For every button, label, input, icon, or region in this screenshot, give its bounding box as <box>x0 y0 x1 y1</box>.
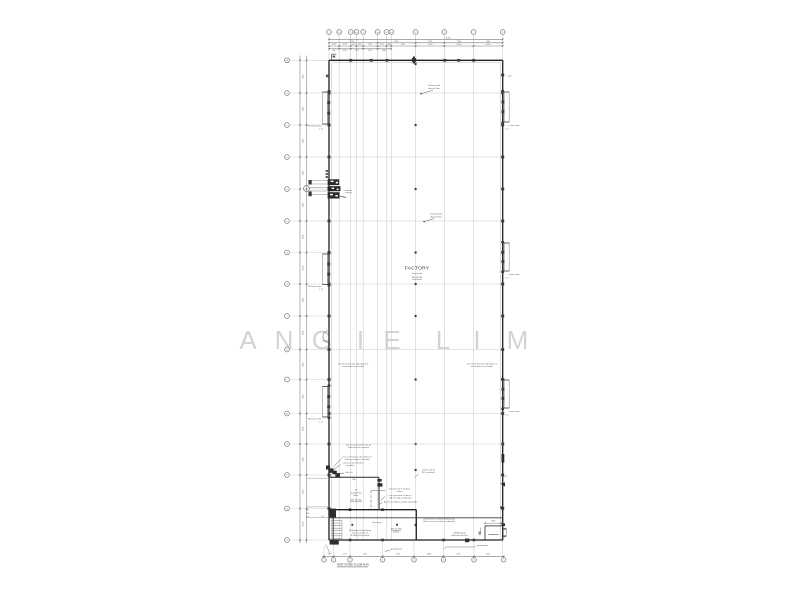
svg-text:FFL 30.150: FFL 30.150 <box>350 499 362 501</box>
svg-text:4 1/2: 4 1/2 <box>505 414 509 416</box>
svg-text:900: 900 <box>328 554 331 556</box>
svg-text:Cant arm top 4 1/2 thick: Cant arm top 4 1/2 thick <box>342 462 363 465</box>
svg-text:grating drain: grating drain <box>477 544 488 547</box>
svg-text:& FFL(a) 150 hi kerb: & FFL(a) 150 hi kerb <box>351 535 370 537</box>
svg-text:N: N <box>275 325 294 355</box>
svg-text:3150: 3150 <box>363 554 367 556</box>
svg-text:10350: 10350 <box>428 44 433 46</box>
svg-text:7500: 7500 <box>486 41 490 43</box>
svg-text:7150: 7150 <box>394 41 398 43</box>
svg-text:100: 100 <box>306 513 309 515</box>
svg-text:Line of exhaust air duct above: Line of exhaust air duct above at <box>343 455 372 458</box>
svg-text:(heavy use): (heavy use) <box>412 273 423 275</box>
svg-text:800: 800 <box>333 50 336 52</box>
svg-text:A: A <box>239 325 257 355</box>
svg-text:J: J <box>287 316 288 318</box>
svg-text:4 1/2: 4 1/2 <box>319 422 323 424</box>
svg-text:(Card Firm): (Card Firm) <box>351 491 362 494</box>
svg-text:5150: 5150 <box>368 44 372 46</box>
svg-text:W2 louvre wdw: W2 louvre wdw <box>308 419 322 421</box>
svg-text:(driveway): (driveway) <box>372 522 382 524</box>
svg-text:W2 louvre wdw: W2 louvre wdw <box>308 286 322 288</box>
svg-text:3150: 3150 <box>396 554 400 556</box>
svg-text:M: M <box>507 325 529 355</box>
svg-text:Line of second stry slab above: Line of second stry slab above to <box>338 363 369 366</box>
svg-text:4 1/2: 4 1/2 <box>319 289 323 291</box>
svg-text:Louvre wdw: Louvre wdw <box>509 125 520 127</box>
svg-text:2nd stry ceiling as indicated: 2nd stry ceiling as indicated <box>345 458 370 461</box>
svg-text:1688: 1688 <box>387 44 391 46</box>
svg-text:A) stair rm lobby to smoke-sto: A) stair rm lobby to smoke-stop lobby <box>384 500 417 503</box>
svg-text:spandrel: spandrel <box>346 465 354 467</box>
svg-text:3050: 3050 <box>457 554 461 556</box>
svg-text:Dash dot line 4 1/2 thick: Dash dot line 4 1/2 thick <box>389 488 410 491</box>
svg-text:10500: 10500 <box>486 44 491 46</box>
svg-text:up: up <box>321 516 323 518</box>
svg-text:4 1/2: 4 1/2 <box>505 277 509 279</box>
svg-text:63 Dalston to 2nd storey: 63 Dalston to 2nd storey <box>349 529 371 532</box>
svg-text:150: 150 <box>306 509 309 511</box>
svg-text:Louvre wdw: Louvre wdw <box>509 274 520 276</box>
svg-text:ceiling: ceiling <box>397 491 403 493</box>
svg-text:4 1/2: 4 1/2 <box>504 476 508 478</box>
svg-text:2nd stry slab: 2nd stry slab <box>430 213 443 216</box>
svg-text:FIRST STOREY FLOOR PLAN: FIRST STOREY FLOOR PLAN <box>337 563 369 566</box>
svg-text:3000: 3000 <box>486 554 490 556</box>
svg-text:2213: 2213 <box>355 50 359 52</box>
svg-text:FFL 30.150: FFL 30.150 <box>412 277 423 279</box>
svg-text:(Electrical Sub-Stn): (Electrical Sub-Stn) <box>451 534 468 537</box>
svg-text:invert drain at verandah: invert drain at verandah <box>342 365 365 368</box>
svg-text:above rf line: above rf line <box>428 87 440 90</box>
svg-text:office: office <box>354 495 360 497</box>
svg-text:1538: 1538 <box>343 50 347 52</box>
svg-text:3325: 3325 <box>332 44 336 46</box>
svg-text:FACTORY: FACTORY <box>405 265 430 271</box>
svg-text:10500: 10500 <box>457 44 462 46</box>
svg-text:4 1/2: 4 1/2 <box>319 129 323 131</box>
svg-text:(lobby): (lobby) <box>393 532 399 534</box>
svg-text:grating drain: grating drain <box>391 548 402 551</box>
svg-text:7150: 7150 <box>428 41 432 43</box>
svg-text:9150: 9150 <box>350 41 354 43</box>
svg-text:4 1/2: 4 1/2 <box>505 128 509 130</box>
svg-text:7500: 7500 <box>457 41 461 43</box>
svg-text:Line of second stry slab above: Line of second stry slab above to <box>467 363 498 366</box>
svg-text:2888: 2888 <box>427 554 431 556</box>
svg-text:1575: 1575 <box>343 554 347 556</box>
svg-text:2325: 2325 <box>358 44 362 46</box>
svg-text:(RC roof deck): (RC roof deck) <box>422 472 435 474</box>
svg-text:FFL 30.150: FFL 30.150 <box>391 529 402 531</box>
svg-text:(Refer to current guide as ind: (Refer to current guide as indicated) <box>423 520 455 523</box>
svg-text:41600: 41600 <box>445 37 450 39</box>
svg-text:3175: 3175 <box>380 44 384 46</box>
svg-text:8650: 8650 <box>401 44 405 46</box>
svg-text:2050: 2050 <box>352 44 356 46</box>
svg-text:1688: 1688 <box>382 50 386 52</box>
svg-text:roller sh: roller sh <box>345 472 352 474</box>
svg-text:2213: 2213 <box>368 50 372 52</box>
svg-text:rwdp: rwdp <box>508 75 512 77</box>
svg-text:Louvre wdw: Louvre wdw <box>509 411 520 413</box>
svg-text:W2 louvre wdw: W2 louvre wdw <box>308 126 322 128</box>
svg-text:E: E <box>383 325 400 355</box>
svg-text:I: I <box>473 325 480 355</box>
svg-text:invert drain at verandah: invert drain at verandah <box>348 446 369 449</box>
svg-text:4125: 4125 <box>343 44 347 46</box>
svg-text:45kVA sub-stn: 45kVA sub-stn <box>453 532 465 535</box>
svg-text:Drain line RC rod inter-tenanc: Drain line RC rod inter-tenancy wall <box>423 517 455 520</box>
svg-text:Line of exhaust air duct at: Line of exhaust air duct at <box>389 494 412 497</box>
svg-text:invert drain at verandah: invert drain at verandah <box>471 365 494 368</box>
svg-text:above rf line: above rf line <box>430 216 442 219</box>
svg-text:2nd stry slab: 2nd stry slab <box>428 84 441 87</box>
svg-text:2nd stry slab as indicated: 2nd stry slab as indicated <box>389 496 412 499</box>
svg-text:L: L <box>436 325 450 355</box>
